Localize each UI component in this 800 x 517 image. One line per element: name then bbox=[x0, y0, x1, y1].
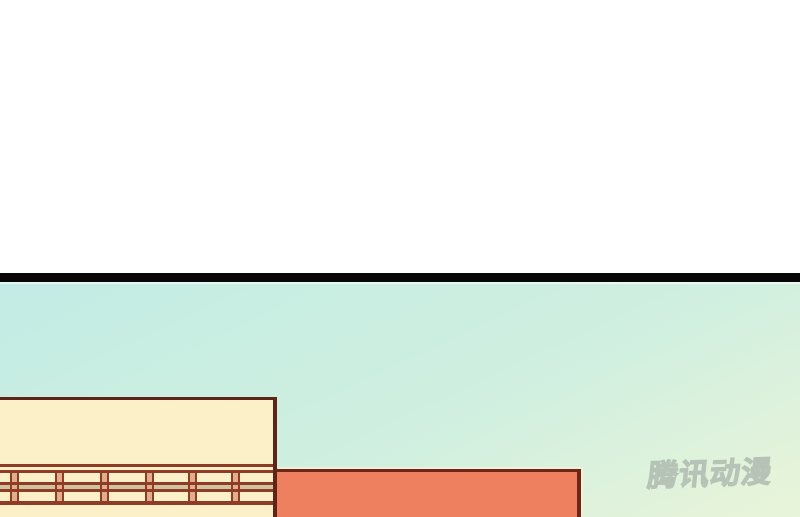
railing-rail-top bbox=[0, 464, 273, 467]
railing-rail-bottom bbox=[0, 501, 273, 505]
railing-post bbox=[231, 473, 240, 501]
tencent-comics-watermark: 腾讯动漫 bbox=[646, 456, 774, 493]
railing-post bbox=[10, 473, 19, 501]
railing-rail bbox=[0, 482, 273, 485]
cream-building bbox=[0, 397, 277, 517]
railing-rail bbox=[0, 489, 273, 492]
railing-post bbox=[100, 473, 109, 501]
balcony-railing bbox=[0, 460, 273, 508]
comic-page: 腾讯动漫 bbox=[0, 0, 800, 517]
railing-rail bbox=[0, 470, 273, 473]
railing-post bbox=[188, 473, 197, 501]
railing-post bbox=[145, 473, 154, 501]
orange-building bbox=[277, 469, 581, 517]
comic-panel: 腾讯动漫 bbox=[0, 273, 800, 517]
white-gutter bbox=[0, 0, 800, 273]
railing-post bbox=[55, 473, 64, 501]
